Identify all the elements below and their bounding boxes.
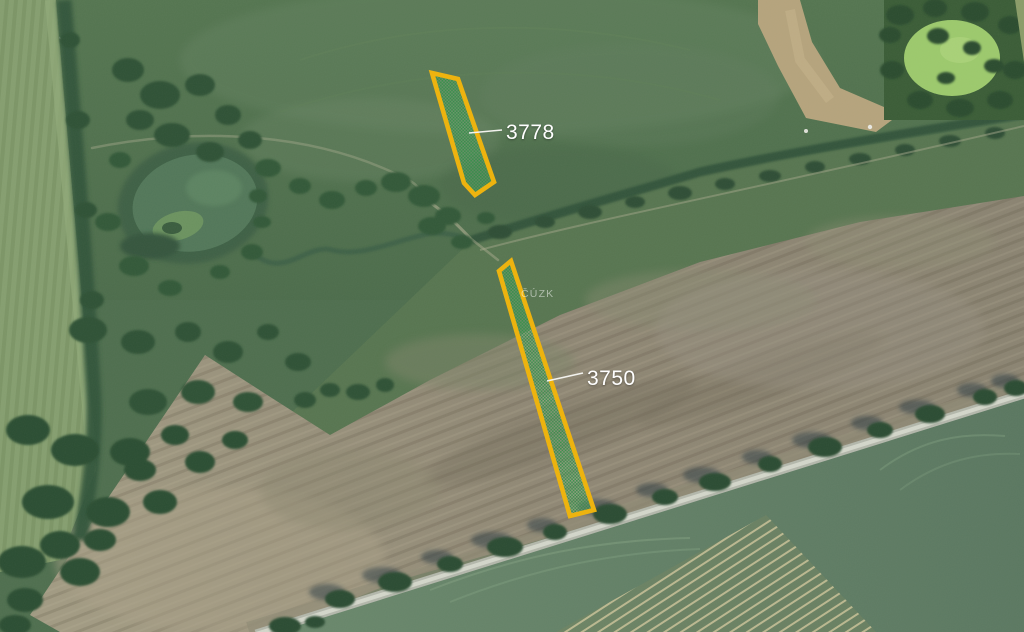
parcel-label-3750: 3750 — [587, 367, 636, 390]
cuzk-watermark: ČÚZK — [521, 287, 554, 300]
aerial-map: 3778 3750 ČÚZK — [0, 0, 1024, 632]
parcel-label-3778: 3778 — [506, 121, 555, 144]
aerial-map-viewport[interactable]: 3778 3750 ČÚZK — [0, 0, 1024, 632]
